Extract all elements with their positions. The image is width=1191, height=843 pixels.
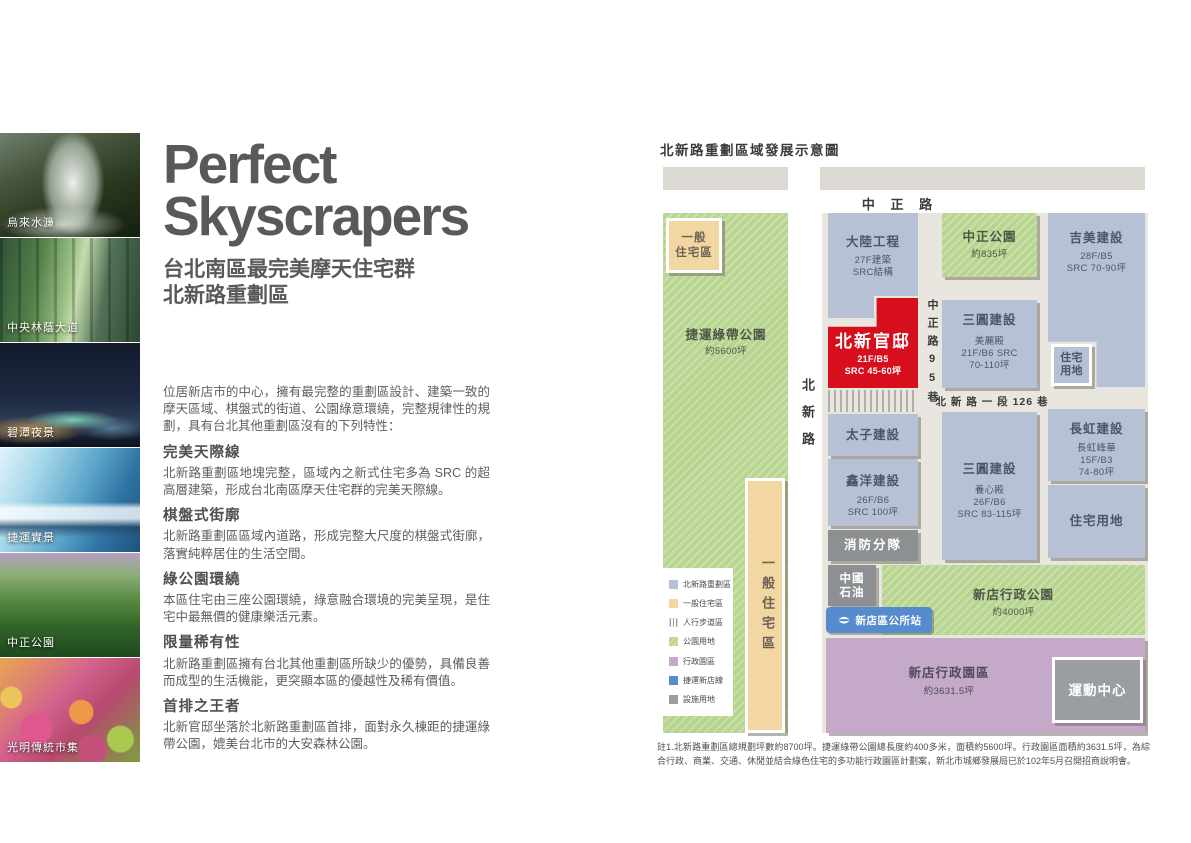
zone-name: 新店行政園區 <box>874 666 1024 681</box>
block-xinyang-construction: 鑫洋建設 26F/B6 SRC 100坪 <box>828 459 918 526</box>
section-body: 北新路重劃區擁有台北其他重劃區所缺少的優勢，具備良善而成型的生活機能，更突顯本區… <box>163 656 490 690</box>
zone-label: 一般 <box>682 231 707 246</box>
block-spec: SRC 100坪 <box>848 507 898 519</box>
block-spec: 26F/B6 <box>973 497 1005 509</box>
legend-swatch-park <box>669 637 678 646</box>
block-name: 鑫洋建設 <box>846 474 900 489</box>
section-body: 本區住宅由三座公園環繞，綠意融合環境的完美呈現，是住宅中最無價的健康樂活元素。 <box>163 592 490 626</box>
block-spec: SRC結構 <box>853 267 894 279</box>
park-name: 中正公園 <box>962 230 1016 245</box>
map-footnote: 註1.北新路重劃區總規劃坪數約8700坪。捷運綠帶公園總長度約400多米，面積約… <box>657 741 1150 768</box>
block-name: 運動中心 <box>1069 683 1127 698</box>
section-heading: 完美天際線 <box>163 445 490 462</box>
zone-size: 約3631.5坪 <box>874 686 1024 698</box>
residential-strip-label: 一般住宅區 <box>758 556 777 656</box>
block-spec: 74-80坪 <box>1079 467 1115 479</box>
photo-label: 中正公園 <box>7 634 55 650</box>
legend-label: 北新路重劃區 <box>683 579 731 590</box>
subtitle-line-1: 台北南區最完美摩天住宅群 <box>163 257 498 283</box>
hero: Perfect Skyscrapers 台北南區最完美摩天住宅群 北新路重劃區 <box>163 138 498 309</box>
legend-item: 一般住宅區 <box>669 598 727 609</box>
block-spec: SRC 70-90坪 <box>1067 263 1127 275</box>
block-name: 石油 <box>840 586 865 600</box>
legend-item: 捷運新店線 <box>669 675 727 686</box>
legend-label: 行政園區 <box>683 656 715 667</box>
block-name: 吉美建設 <box>1069 231 1123 246</box>
map-title: 北新路重劃區域發展示意圖 <box>660 139 840 159</box>
development-map: 中 正 路 一般 住宅區 捷運綠帶公園 約5600坪 北新路重劃區 一般住宅區 … <box>660 158 1148 738</box>
legend-swatch-admin <box>669 657 678 666</box>
block-sanyuan-meilidian: 三圓建設 美麗殿 21F/B6 SRC 70-110坪 <box>942 300 1037 388</box>
brochure-page: 烏來水濂 中央林蔭大道 碧潭夜景 捷運實景 中正公園 光明傳統市集 Perfec… <box>0 0 1191 843</box>
block-spec: 15F/B3 <box>1080 455 1112 467</box>
legend-swatch-redev <box>669 580 678 589</box>
block-residential-small: 住宅 用地 <box>1051 344 1092 386</box>
block-subname: 美麗殿 <box>975 336 1004 348</box>
block-spec: SRC 45-60坪 <box>845 365 902 377</box>
title-line-2: Skyscrapers <box>163 185 468 247</box>
block-spec: 21F/B5 <box>857 353 888 365</box>
park-name: 捷運綠帶公園 <box>668 328 784 343</box>
park-name: 新店行政公園 <box>973 588 1054 603</box>
section-body: 北新路重劃區地塊完整，區域內之新式住宅多為 SRC 的超高層建築，形成台北南區摩… <box>163 465 490 499</box>
block-sports-center: 運動中心 <box>1052 657 1143 723</box>
photo-wulai-waterfall: 烏來水濂 <box>0 133 140 237</box>
photo-traditional-market: 光明傳統市集 <box>0 658 140 762</box>
block-spec: 27F建築 <box>855 255 892 267</box>
block-name: 中國 <box>840 572 865 586</box>
legend-swatch-facility <box>669 695 678 704</box>
legend-item: 設施用地 <box>669 694 727 705</box>
map-legend: 北新路重劃區 一般住宅區 人行步道區 公園用地 行政園區 捷運新店線 設施用地 <box>663 568 733 716</box>
zone-label: 住宅區 <box>675 246 713 261</box>
block-cpc-petroleum: 中國 石油 <box>828 565 876 606</box>
block-spec: 21F/B6 SRC <box>961 348 1017 360</box>
photo-label: 碧潭夜景 <box>7 424 55 440</box>
legend-swatch-mrt <box>669 676 678 685</box>
section-heading: 限量稀有性 <box>163 635 490 652</box>
intro-paragraph: 位居新店市的中心，擁有最完整的重劃區設計、建築一致的摩天區域、棋盤式的街道、公園… <box>163 384 490 436</box>
block-name: 太子建設 <box>846 428 900 443</box>
block-spec: 26F/B6 <box>857 495 889 507</box>
road-label-beixin: 北新路 <box>798 378 817 459</box>
block-name: 北新官邸 <box>835 334 911 349</box>
body-copy: 位居新店市的中心，擁有最完整的重劃區設計、建築一致的摩天區域、棋盤式的街道、公園… <box>163 384 490 754</box>
section-heading: 首排之王者 <box>163 699 490 716</box>
park-size: 約4000坪 <box>993 607 1035 619</box>
park-size: 約835坪 <box>971 249 1007 261</box>
photo-mrt-train: 捷運實景 <box>0 448 140 552</box>
section-body: 北新路重劃區區域內道路，形成完整大尺度的棋盤式街廓，落實純粹居住的生活空間。 <box>163 528 490 562</box>
road-bar-right <box>820 167 1145 190</box>
block-changhong-construction: 長虹建設 長虹峰華 15F/B3 74-80坪 <box>1048 409 1145 481</box>
road-label-zhongzheng-lane95: 中正路95巷 <box>924 299 940 409</box>
legend-label: 一般住宅區 <box>683 598 723 609</box>
photo-label: 捷運實景 <box>7 529 55 545</box>
block-subname: 長虹峰華 <box>1077 443 1116 455</box>
legend-item: 北新路重劃區 <box>669 579 727 590</box>
block-name: 住宅用地 <box>1069 514 1123 529</box>
page-subtitle: 台北南區最完美摩天住宅群 北新路重劃區 <box>163 257 498 309</box>
block-name: 三圓建設 <box>962 462 1016 477</box>
admin-zone-label: 新店行政園區 約3631.5坪 <box>874 666 1024 698</box>
block-fire-station: 消防分隊 <box>828 530 918 561</box>
block-name: 用地 <box>1060 365 1083 378</box>
photo-label: 烏來水濂 <box>7 214 55 230</box>
legend-item: 行政園區 <box>669 656 727 667</box>
legend-item: 公園用地 <box>669 636 727 647</box>
section-body: 北新官邸坐落於北新路重劃區首排，面對永久棟距的捷運綠帶公園，媲美台北市的大安森林… <box>163 719 490 753</box>
legend-item: 人行步道區 <box>669 617 727 628</box>
block-spec: 70-110坪 <box>969 360 1009 372</box>
pedestrian-walkway <box>828 390 918 412</box>
road-bar-left <box>663 167 788 190</box>
section-heading: 綠公園環繞 <box>163 572 490 589</box>
block-taizi-construction: 太子建設 <box>828 414 918 456</box>
legend-label: 捷運新店線 <box>683 675 723 686</box>
block-name: 長虹建設 <box>1069 422 1123 437</box>
road-label-zhongzheng: 中 正 路 <box>820 194 980 213</box>
legend-label: 設施用地 <box>683 694 715 705</box>
block-spec: 28F/B5 <box>1080 251 1112 263</box>
legend-label: 人行步道區 <box>683 617 723 628</box>
photo-label: 中央林蔭大道 <box>7 319 79 335</box>
station-name: 新店區公所站 <box>856 613 922 628</box>
subtitle-line-2: 北新路重劃區 <box>163 283 498 309</box>
legend-swatch-walkway <box>669 618 678 627</box>
legend-swatch-residential <box>669 599 678 608</box>
block-name: 住宅 <box>1060 352 1083 365</box>
page-title: Perfect Skyscrapers <box>163 138 498 242</box>
block-name: 大陸工程 <box>846 235 900 250</box>
block-sanyuan-yangxindian: 三圓建設 養心殿 26F/B6 SRC 83-115坪 <box>942 412 1037 560</box>
block-name: 消防分隊 <box>844 538 902 553</box>
green-belt-park-label: 捷運綠帶公園 約5600坪 <box>668 328 784 358</box>
park-size: 約5600坪 <box>668 346 784 358</box>
block-spec: SRC 83-115坪 <box>957 509 1021 521</box>
photo-strip: 烏來水濂 中央林蔭大道 碧潭夜景 捷運實景 中正公園 光明傳統市集 <box>0 133 140 763</box>
photo-bitan-night: 碧潭夜景 <box>0 343 140 447</box>
block-residential-big: 住宅用地 <box>1048 485 1145 558</box>
legend-label: 公園用地 <box>683 636 715 647</box>
block-subname: 養心殿 <box>975 485 1004 497</box>
photo-zhongzheng-park: 中正公園 <box>0 553 140 657</box>
block-name: 三圓建設 <box>962 313 1016 328</box>
mrt-logo-icon <box>837 613 851 627</box>
section-heading: 棋盤式街廓 <box>163 508 490 525</box>
block-zhongzheng-park: 中正公園 約835坪 <box>942 213 1037 277</box>
photo-label: 光明傳統市集 <box>7 739 79 755</box>
residential-zone-top-left: 一般 住宅區 <box>666 218 722 273</box>
road-label-beixin-lane126: 北 新 路 一 段 126 巷 <box>932 394 1052 409</box>
mrt-station-xindian-district-office: 新店區公所站 <box>826 607 932 633</box>
residential-strip: 一般住宅區 <box>745 478 785 733</box>
photo-tree-boulevard: 中央林蔭大道 <box>0 238 140 342</box>
